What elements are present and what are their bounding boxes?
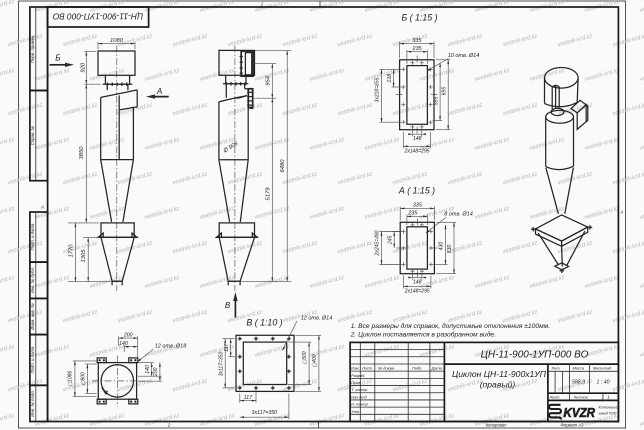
svg-text:Масса: Масса <box>573 365 585 370</box>
svg-text:Подп. и дата: Подп. и дата <box>30 346 35 374</box>
svg-text:530: 530 <box>447 245 453 254</box>
svg-text:335: 335 <box>412 38 422 44</box>
svg-text:148: 148 <box>413 279 422 285</box>
svg-text:ЦН-11-900-1УП-000 ВО: ЦН-11-900-1УП-000 ВО <box>52 12 143 22</box>
svg-text:245: 245 <box>387 235 393 245</box>
svg-text:А: А <box>40 205 44 210</box>
svg-text:3х117=350: 3х117=350 <box>252 410 278 416</box>
svg-text:588,9: 588,9 <box>572 380 585 386</box>
svg-text:12 отв. Ø14: 12 отв. Ø14 <box>301 316 333 322</box>
svg-text:1770: 1770 <box>68 244 74 258</box>
svg-text:695: 695 <box>441 87 447 96</box>
svg-text:Нач.отд: Нач.отд <box>351 394 367 399</box>
svg-text:▢900: ▢900 <box>81 372 87 385</box>
svg-text:Формат А3: Формат А3 <box>561 422 585 427</box>
svg-text:А ( 1:15 ): А ( 1:15 ) <box>398 186 435 196</box>
svg-text:Утв.: Утв. <box>351 409 360 414</box>
svg-text:6480: 6480 <box>280 159 286 173</box>
svg-text:(правый): (правый) <box>480 379 516 389</box>
svg-text:117: 117 <box>244 395 253 401</box>
svg-text:завод РЭП: завод РЭП <box>598 412 617 416</box>
svg-text:235: 235 <box>407 211 418 217</box>
svg-text:218: 218 <box>387 74 393 84</box>
svg-text:Подп.: Подп. <box>412 366 422 371</box>
svg-text:№ докум.: № докум. <box>378 366 395 371</box>
svg-text:Лист: Лист <box>549 395 561 400</box>
svg-text:595: 595 <box>433 97 439 106</box>
svg-text:5179: 5179 <box>265 187 271 201</box>
svg-text:2х245=490: 2х245=490 <box>375 230 381 256</box>
svg-text:1305: 1305 <box>81 249 87 263</box>
svg-text:▢1086: ▢1086 <box>68 371 74 387</box>
svg-text:140: 140 <box>119 341 128 347</box>
svg-text:Копировал: Копировал <box>486 422 507 427</box>
svg-text:▢300: ▢300 <box>302 351 308 364</box>
svg-text:Подп. и дата: Подп. и дата <box>30 223 35 251</box>
svg-text:В ( 1:10 ): В ( 1:10 ) <box>246 317 282 327</box>
svg-text:3х117=350: 3х117=350 <box>218 352 224 377</box>
svg-text:Т. контр.: Т. контр. <box>351 387 368 392</box>
svg-text:А: А <box>620 210 624 215</box>
svg-text:1080: 1080 <box>110 38 124 44</box>
svg-text:335: 335 <box>413 203 423 209</box>
svg-text:1: 1 <box>607 395 609 400</box>
svg-text:2х148=295: 2х148=295 <box>404 148 430 154</box>
svg-text:3х218=655: 3х218=655 <box>374 77 380 102</box>
svg-text:Дата: Дата <box>431 366 443 371</box>
svg-text:200: 200 <box>123 332 133 338</box>
svg-text:Взам. инв. №: Взам. инв. № <box>30 303 35 330</box>
svg-text:Листов: Листов <box>573 395 588 400</box>
svg-text:3850: 3850 <box>79 146 85 160</box>
svg-text:Изм.: Изм. <box>351 366 359 371</box>
svg-text:KVZR: KVZR <box>564 405 596 420</box>
svg-text:Н. контр.: Н. контр. <box>351 402 369 407</box>
svg-text:Б: Б <box>55 54 60 63</box>
svg-text:430: 430 <box>439 242 445 251</box>
svg-text:140: 140 <box>145 365 151 374</box>
svg-text:Котельный: Котельный <box>599 406 619 410</box>
svg-text:1. Все размеры для справок, до: 1. Все размеры для справок, допустимые о… <box>351 322 551 330</box>
svg-text:ЦН-11-900-1УП-000 ВО: ЦН-11-900-1УП-000 ВО <box>481 349 589 360</box>
svg-text:920: 920 <box>81 62 87 72</box>
svg-text:117: 117 <box>224 342 230 351</box>
svg-text:А: А <box>156 87 162 96</box>
svg-text:В: В <box>225 301 231 310</box>
svg-text:954: 954 <box>265 76 271 86</box>
svg-text:8 отв. Ø14: 8 отв. Ø14 <box>444 212 473 218</box>
svg-text:Б ( 1:15 ): Б ( 1:15 ) <box>401 13 437 23</box>
svg-text:1 : 40: 1 : 40 <box>597 380 610 386</box>
svg-text:Лит.: Лит. <box>551 365 561 370</box>
svg-text:Инв. № дубл.: Инв. № дубл. <box>30 267 35 293</box>
svg-text:148: 148 <box>413 136 422 142</box>
svg-text:Масштаб: Масштаб <box>593 365 612 370</box>
svg-text:▢400: ▢400 <box>312 354 318 367</box>
svg-text:2. Циклон поставляется в разоб: 2. Циклон поставляется в разобранном вид… <box>350 331 496 339</box>
svg-text:Инв. № подл.: Инв. № подл. <box>30 390 35 417</box>
svg-text:Лист: Лист <box>361 366 373 371</box>
svg-text:12 отв. Ø18: 12 отв. Ø18 <box>155 344 188 350</box>
svg-text:200: 200 <box>153 367 159 377</box>
svg-text:235: 235 <box>412 46 423 52</box>
svg-text:Перв. примен.: Перв. примен. <box>30 34 35 63</box>
svg-text:Циклон ЦН-11-900х1УП: Циклон ЦН-11-900х1УП <box>452 369 547 379</box>
svg-text:Разраб.: Разраб. <box>351 373 365 378</box>
svg-text:10 отв. Ø14: 10 отв. Ø14 <box>448 53 480 59</box>
svg-text:Пров.: Пров. <box>351 380 361 385</box>
svg-text:Справ. №: Справ. № <box>30 125 35 145</box>
svg-text:2х148=295: 2х148=295 <box>404 289 430 295</box>
